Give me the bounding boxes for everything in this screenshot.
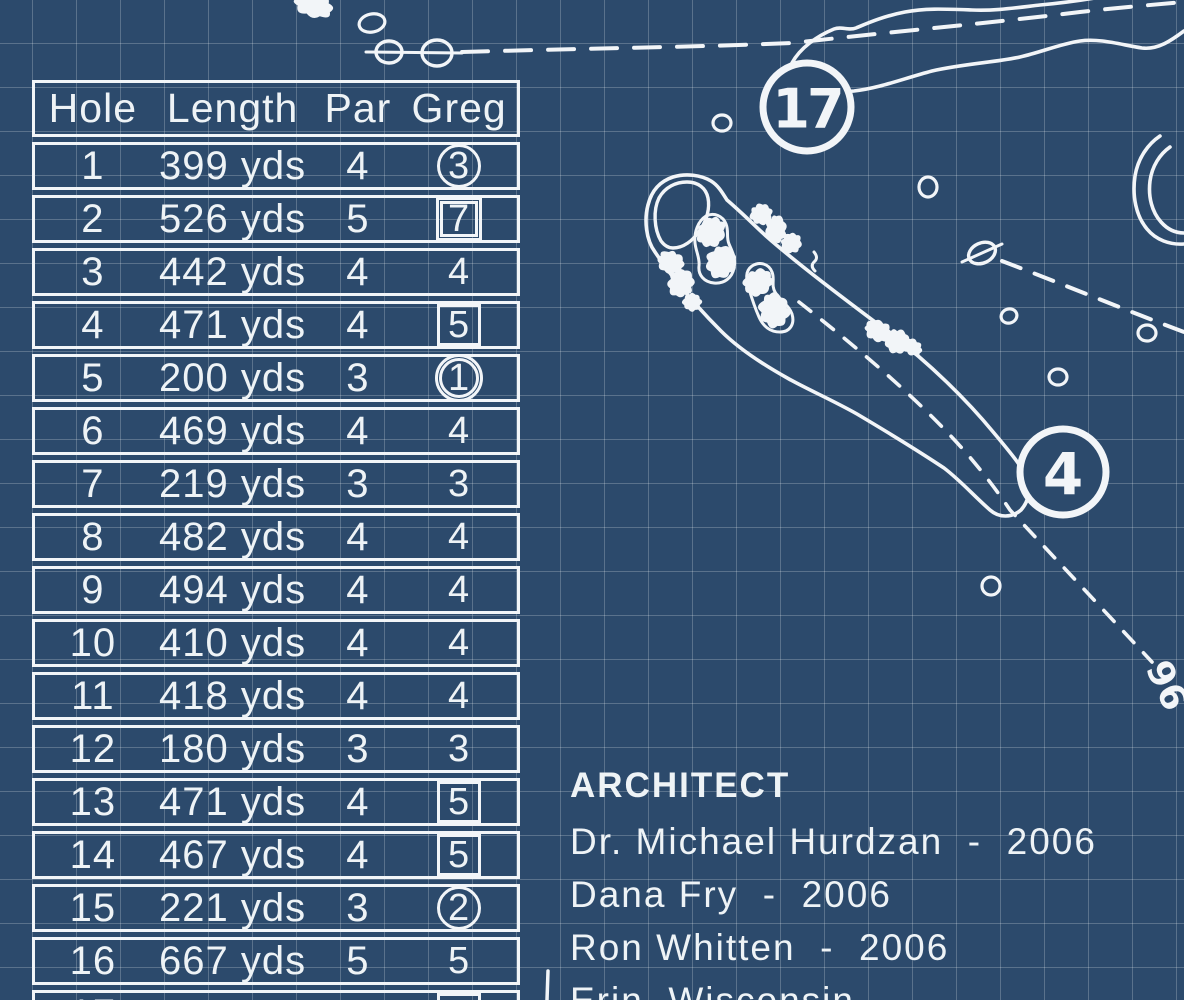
scorecard-row: 14 467 yds 4 5: [32, 831, 520, 879]
par-cell: 3: [315, 464, 402, 504]
score-marker: 4: [437, 568, 481, 612]
scorecard-row: 15 221 yds 3 2: [32, 884, 520, 932]
scorecard-row: 4 471 yds 4 5: [32, 301, 520, 349]
small-oval: [999, 307, 1019, 326]
length-cell: 471 yds: [151, 305, 315, 345]
hole-number-cell: 4: [35, 305, 151, 345]
hole-17-marker: 17: [763, 63, 851, 151]
right-centerline-dashed: [1002, 261, 1184, 332]
score-value: 4: [448, 253, 470, 291]
hole-4-number: 4: [1043, 440, 1083, 508]
hole-4-marker: 4: [1020, 429, 1106, 515]
length-cell: 494 yds: [151, 570, 315, 610]
score-cell: 4: [401, 621, 517, 665]
length-cell: 180 yds: [151, 729, 315, 769]
right-tee: [962, 238, 1002, 268]
length-cell: 410 yds: [151, 623, 315, 663]
par-cell: 5: [315, 199, 402, 239]
scorecard-row: 9 494 yds 4 4: [32, 566, 520, 614]
scorecard-row: 3 442 yds 4 4: [32, 248, 520, 296]
scorecard-row: 12 180 yds 3 3: [32, 725, 520, 773]
score-marker: 1: [435, 354, 483, 402]
score-marker: 5: [437, 304, 481, 346]
par-cell: 4: [315, 623, 402, 663]
hole-17-number: 17: [772, 78, 841, 141]
small-oval: [919, 177, 937, 197]
par-cell: 4: [315, 676, 402, 716]
blueprint-canvas: 96 17 4 Hole Length Par Greg 1 399 yds 4…: [0, 0, 1184, 1000]
score-cell: 5: [401, 781, 517, 823]
score-value: 3: [448, 147, 470, 185]
header-par: Par: [315, 88, 402, 129]
scorecard-row: 2 526 yds 5 7: [32, 195, 520, 243]
architect-line: Dr. Michael Hurdzan - 2006: [570, 815, 1097, 868]
score-marker: [437, 993, 481, 1000]
score-marker: 2: [437, 886, 481, 930]
hole-number-cell: 15: [35, 888, 151, 928]
hole-number-cell: 6: [35, 411, 151, 451]
tee-line: [366, 52, 462, 53]
hole-number-cell: 14: [35, 835, 151, 875]
scorecard-row: 11 418 yds 4 4: [32, 672, 520, 720]
scorecard-table: Hole Length Par Greg 1 399 yds 4 3 2 526…: [32, 80, 520, 1000]
small-oval: [1049, 369, 1067, 385]
bunker-top-edge: [291, 0, 335, 22]
par-cell: 4: [315, 835, 402, 875]
par-cell: 4: [315, 782, 402, 822]
length-cell: 442 yds: [151, 252, 315, 292]
score-value: 4: [448, 412, 470, 450]
header-length: Length: [151, 88, 315, 129]
par-cell: 4: [315, 252, 402, 292]
scorecard-row: 6 469 yds 4 4: [32, 407, 520, 455]
scorecard-row: 17: [32, 990, 520, 1000]
score-value: 3: [448, 465, 470, 503]
length-cell: 200 yds: [151, 358, 315, 398]
architect-line: Dana Fry - 2006: [570, 868, 1097, 921]
score-marker: 3: [437, 727, 481, 771]
par-cell: 4: [315, 146, 402, 186]
scorecard-row: 10 410 yds 4 4: [32, 619, 520, 667]
score-marker: 3: [437, 462, 481, 506]
par-cell: 4: [315, 517, 402, 557]
hole-number-cell: 10: [35, 623, 151, 663]
architect-heading: ARCHITECT: [570, 766, 1097, 806]
score-cell: 4: [401, 674, 517, 718]
architect-lines: Dr. Michael Hurdzan - 2006 Dana Fry - 20…: [570, 815, 1097, 1000]
scorecard-row: 8 482 yds 4 4: [32, 513, 520, 561]
length-cell: 399 yds: [151, 146, 315, 186]
score-marker: 4: [437, 674, 481, 718]
small-oval: [357, 11, 386, 34]
hole-number-cell: 7: [35, 464, 151, 504]
score-cell: 7: [401, 197, 517, 241]
score-value: 5: [448, 942, 470, 980]
score-value: 5: [448, 306, 470, 344]
hole-number-cell: 1: [35, 146, 151, 186]
score-cell: 3: [401, 144, 517, 188]
score-value: 1: [448, 359, 470, 397]
scorecard-row: 7 219 yds 3 3: [32, 460, 520, 508]
score-marker: 7: [436, 197, 482, 241]
hole-number-cell: 3: [35, 252, 151, 292]
length-cell: 482 yds: [151, 517, 315, 557]
hole-number-cell: 13: [35, 782, 151, 822]
hole-number-cell: 9: [35, 570, 151, 610]
score-cell: 2: [401, 886, 517, 930]
bunker-sand-blobs: [655, 199, 925, 359]
score-cell: [401, 993, 517, 1000]
hole-17-tees: [366, 40, 462, 66]
score-cell: 4: [401, 250, 517, 294]
scorecard-row: 16 667 yds 5 5: [32, 937, 520, 985]
scorecard-row: 1 399 yds 4 3: [32, 142, 520, 190]
score-cell: 3: [401, 462, 517, 506]
length-cell: 471 yds: [151, 782, 315, 822]
bottom-edge-line: [547, 971, 548, 1000]
length-cell: 467 yds: [151, 835, 315, 875]
scorecard-header: Hole Length Par Greg: [32, 80, 520, 137]
hole-number-cell: 11: [35, 676, 151, 716]
hole-number-cell: 2: [35, 199, 151, 239]
score-cell: 4: [401, 515, 517, 559]
score-value: 5: [448, 836, 470, 874]
small-oval: [982, 577, 1000, 595]
hole-17-centerline-dashed: [462, 2, 1184, 52]
hole-number-cell: 12: [35, 729, 151, 769]
scorecard-row: 5 200 yds 3 1: [32, 354, 520, 402]
score-value: 4: [448, 624, 470, 662]
score-marker: 3: [437, 144, 481, 188]
architect-line: Erin, Wisconsin: [570, 974, 1097, 1000]
length-cell: 219 yds: [151, 464, 315, 504]
scorecard-row: 13 471 yds 4 5: [32, 778, 520, 826]
scorecard-rows: 1 399 yds 4 3 2 526 yds 5 7 3 442 yds 4: [32, 142, 520, 1000]
score-cell: 5: [401, 834, 517, 876]
rotated-yardage-label: 96: [1137, 654, 1184, 717]
hole-number-cell: 17: [35, 994, 151, 1000]
header-hole: Hole: [35, 88, 151, 129]
small-oval: [1138, 325, 1156, 341]
score-cell: 3: [401, 727, 517, 771]
par-cell: 5: [315, 941, 402, 981]
score-value: 4: [448, 571, 470, 609]
score-cell: 4: [401, 568, 517, 612]
top-right-green-outline: [1134, 136, 1184, 244]
score-cell: 1: [401, 354, 517, 402]
score-marker: 4: [437, 409, 481, 453]
score-value: 3: [448, 730, 470, 768]
score-cell: 5: [401, 304, 517, 346]
grass-squiggle: [812, 252, 816, 271]
score-marker: 5: [437, 834, 481, 876]
architect-line: Ron Whitten - 2006: [570, 921, 1097, 974]
score-marker: 4: [437, 621, 481, 665]
score-marker: 5: [437, 939, 481, 983]
architect-block: ARCHITECT Dr. Michael Hurdzan - 2006 Dan…: [570, 766, 1097, 1000]
score-value: 5: [448, 783, 470, 821]
header-greg: Greg: [401, 88, 517, 129]
score-marker: 4: [437, 250, 481, 294]
score-value: 2: [448, 889, 470, 927]
par-cell: 3: [315, 729, 402, 769]
hole-number-cell: 16: [35, 941, 151, 981]
length-cell: 469 yds: [151, 411, 315, 451]
score-value: 4: [448, 677, 470, 715]
score-value: 7: [448, 200, 470, 238]
par-cell: 4: [315, 570, 402, 610]
par-cell: 4: [315, 411, 402, 451]
length-cell: 667 yds: [151, 941, 315, 981]
hole-number-cell: 5: [35, 358, 151, 398]
score-marker: 5: [437, 781, 481, 823]
score-cell: 4: [401, 409, 517, 453]
length-cell: 418 yds: [151, 676, 315, 716]
score-value: 4: [448, 518, 470, 556]
par-cell: 4: [315, 305, 402, 345]
score-marker: 4: [437, 515, 481, 559]
length-cell: 221 yds: [151, 888, 315, 928]
score-cell: 5: [401, 939, 517, 983]
small-oval: [713, 115, 731, 131]
hole-number-cell: 8: [35, 517, 151, 557]
hole-17-fairway-outline: [790, 0, 1184, 92]
length-cell: 526 yds: [151, 199, 315, 239]
par-cell: 3: [315, 888, 402, 928]
par-cell: 3: [315, 358, 402, 398]
